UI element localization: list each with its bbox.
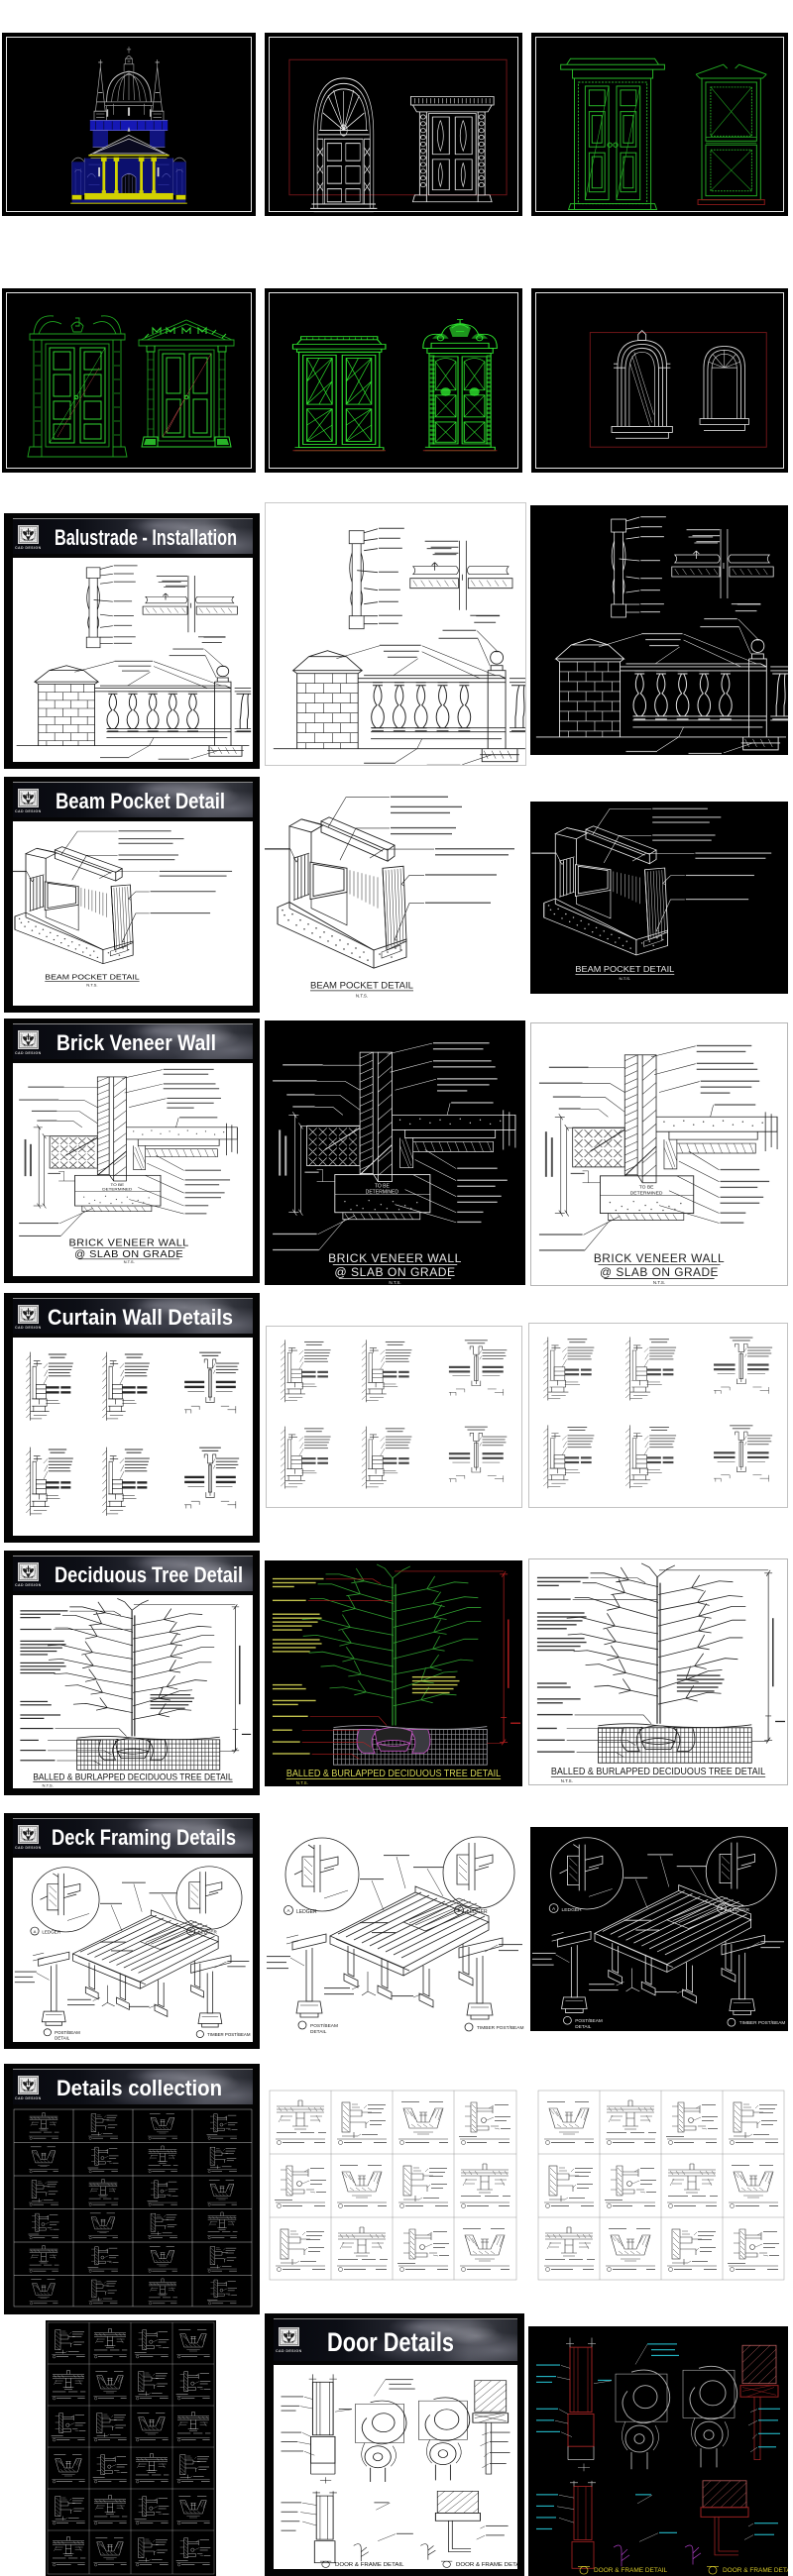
- svg-text:Beam Pocket Detail: Beam Pocket Detail: [56, 789, 225, 813]
- svg-text:Deck Framing Details: Deck Framing Details: [52, 1825, 236, 1850]
- svg-text:Details collection: Details collection: [57, 2076, 222, 2100]
- svg-text:Curtain Wall Details: Curtain Wall Details: [48, 1305, 233, 1330]
- svg-text:Door Details: Door Details: [327, 2327, 454, 2357]
- svg-text:Deciduous Tree Detail: Deciduous Tree Detail: [55, 1562, 243, 1587]
- svg-text:Brick Veneer Wall: Brick Veneer Wall: [57, 1030, 216, 1055]
- svg-text:Balustrade - Installation: Balustrade - Installation: [55, 525, 237, 550]
